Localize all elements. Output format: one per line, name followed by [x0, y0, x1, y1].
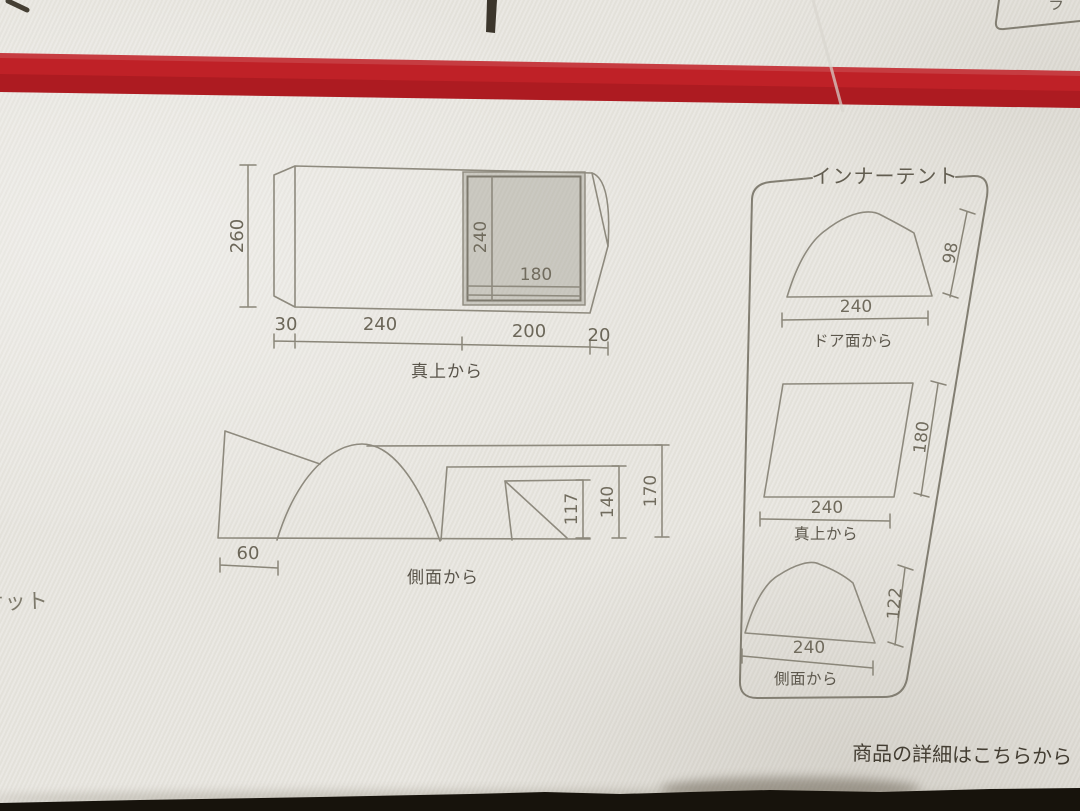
zipper-pull-bar — [486, 0, 497, 33]
dim-117-label: 117 — [562, 493, 582, 525]
left-partial-label: ケット — [0, 589, 49, 615]
dim-inner-180-label: 180 — [520, 265, 552, 285]
side-view-dome — [277, 444, 440, 541]
inner-door-view-shape — [787, 212, 932, 297]
main-side-view-diagram: 117 140 170 60 側面から — [218, 431, 669, 588]
top-left-print-mark — [8, 1, 27, 10]
dim-240-label: 240 — [363, 314, 397, 335]
side-view-flap-and-ground — [218, 431, 590, 539]
side-view-caption: 側面から — [407, 568, 479, 588]
dim-inner-240-label: 240 — [471, 221, 491, 253]
main-top-view-diagram: 260 240 180 30 240 200 20 真上から — [227, 165, 610, 382]
bottom-note: 商品の詳細はこちらから — [852, 741, 1072, 769]
tent-bag-photo: { "colors": { "stripe_red": "#bf2127", "… — [0, 0, 1080, 811]
diagram-canvas: ラ 260 240 180 30 240 200 20 真上から 117 140… — [0, 0, 1080, 811]
inner-door-caption: ドア面から — [813, 332, 893, 350]
red-stripe — [0, 53, 1080, 108]
top-view-caption: 真上から — [411, 362, 483, 382]
inner-tent-title: インナーテント — [812, 164, 959, 188]
dim-20-label: 20 — [588, 325, 611, 346]
inner-top-width-label: 240 — [811, 498, 843, 518]
dim-140-label: 140 — [598, 486, 618, 518]
inner-top-caption: 真上から — [794, 525, 858, 543]
dim-chain-bottom — [274, 334, 608, 355]
inner-side-caption: 側面から — [774, 670, 838, 688]
side-view-pole-lines — [441, 467, 567, 540]
dim-30-label: 30 — [275, 314, 298, 335]
inner-door-width-label: 240 — [840, 297, 872, 317]
top-right-partial-label: ラ — [1048, 0, 1064, 13]
inner-tent-panel: インナーテント 240 98 ドア面から 180 240 真上から 122 24… — [740, 164, 988, 698]
dim-260-label: 260 — [227, 219, 248, 253]
dim-60-label: 60 — [237, 543, 260, 564]
inner-door-height-label: 98 — [939, 241, 962, 266]
dim-200-label: 200 — [512, 321, 546, 342]
side-view-roof-lines — [367, 445, 662, 481]
inner-side-width-label: 240 — [793, 638, 825, 658]
inner-side-view-shape — [745, 562, 875, 643]
inner-top-depth-label: 180 — [910, 420, 934, 455]
inner-side-height-label: 122 — [884, 587, 907, 621]
inner-top-view-shape — [764, 383, 913, 497]
top-right-panel-border — [996, 0, 1080, 29]
dim-170-label: 170 — [641, 475, 661, 507]
